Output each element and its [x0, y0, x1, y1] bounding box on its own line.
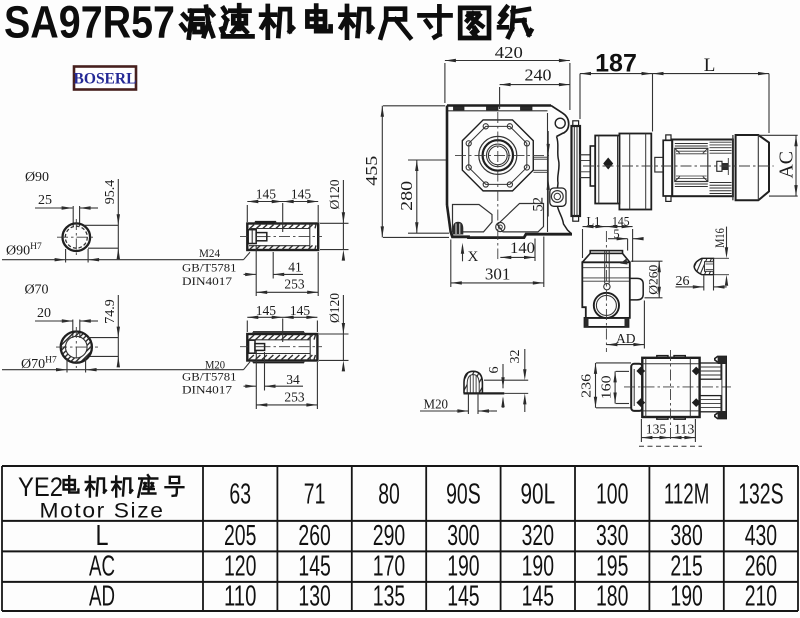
- svg-text:260: 260: [298, 520, 330, 552]
- svg-text:160: 160: [599, 375, 614, 399]
- svg-text:20: 20: [37, 306, 51, 321]
- svg-text:M24: M24: [199, 246, 220, 260]
- svg-text:280: 280: [397, 181, 416, 211]
- svg-text:Ø70: Ø70: [24, 283, 48, 298]
- svg-text:290: 290: [373, 520, 405, 552]
- svg-text:253: 253: [284, 390, 305, 405]
- svg-text:41: 41: [288, 260, 302, 275]
- svg-text:135: 135: [373, 580, 405, 612]
- svg-text:6: 6: [487, 367, 502, 374]
- svg-text:190: 190: [670, 580, 702, 612]
- svg-text:132S: 132S: [738, 479, 783, 511]
- svg-text:X: X: [467, 249, 478, 265]
- svg-text:236: 236: [580, 374, 595, 398]
- svg-text:253: 253: [284, 277, 305, 292]
- svg-text:25: 25: [38, 193, 52, 208]
- svg-text:301: 301: [485, 264, 511, 283]
- svg-text:170: 170: [373, 551, 405, 583]
- svg-text:90S: 90S: [446, 479, 481, 511]
- svg-text:AC: AC: [776, 151, 798, 179]
- svg-text:187: 187: [595, 50, 637, 78]
- svg-text:DIN4017: DIN4017: [182, 382, 232, 396]
- svg-text:215: 215: [670, 551, 702, 583]
- svg-text:420: 420: [495, 43, 523, 62]
- svg-text:190: 190: [522, 551, 554, 583]
- svg-text:26: 26: [676, 274, 690, 289]
- svg-text:63: 63: [229, 479, 251, 511]
- svg-text:80: 80: [378, 479, 400, 511]
- svg-text:135: 135: [646, 423, 667, 438]
- svg-text:SA97R57: SA97R57: [4, 0, 175, 48]
- svg-text:145: 145: [291, 187, 312, 202]
- svg-text:120: 120: [224, 551, 256, 583]
- svg-text:140: 140: [510, 240, 535, 257]
- svg-text:430: 430: [745, 520, 777, 552]
- svg-text:Ø120: Ø120: [327, 293, 342, 323]
- svg-text:145: 145: [256, 303, 277, 318]
- svg-text:300: 300: [447, 520, 479, 552]
- svg-text:145: 145: [290, 303, 311, 318]
- svg-text:130: 130: [298, 580, 330, 612]
- svg-text:240: 240: [525, 65, 552, 84]
- svg-text:205: 205: [224, 520, 256, 552]
- svg-text:110: 110: [224, 580, 256, 612]
- svg-text:34: 34: [286, 372, 300, 387]
- svg-text:113: 113: [674, 423, 695, 438]
- svg-text:L: L: [96, 520, 109, 552]
- svg-text:YE2: YE2: [18, 472, 63, 502]
- svg-text:455: 455: [362, 156, 381, 186]
- svg-text:380: 380: [670, 520, 702, 552]
- svg-text:M16: M16: [712, 228, 727, 248]
- svg-text:260: 260: [745, 551, 777, 583]
- svg-text:180: 180: [596, 580, 628, 612]
- svg-text:Ø90: Ø90: [25, 170, 49, 185]
- svg-text:330: 330: [596, 520, 628, 552]
- svg-text:71: 71: [304, 479, 326, 511]
- svg-text:AD: AD: [89, 580, 115, 612]
- svg-text:74.9: 74.9: [103, 299, 118, 324]
- svg-text:BOSERL: BOSERL: [74, 70, 137, 87]
- svg-text:L: L: [704, 55, 716, 76]
- svg-text:GB/T5781: GB/T5781: [182, 260, 237, 274]
- svg-text:145: 145: [298, 551, 330, 583]
- svg-text:DIN4017: DIN4017: [182, 274, 232, 288]
- svg-text:M20: M20: [424, 397, 449, 412]
- svg-text:AD: AD: [616, 331, 636, 346]
- svg-text:52: 52: [531, 197, 547, 212]
- svg-text:100: 100: [596, 479, 628, 511]
- svg-text:Motor Size: Motor Size: [40, 499, 165, 523]
- svg-text:Ø120: Ø120: [327, 179, 342, 209]
- svg-text:AC: AC: [89, 551, 115, 583]
- svg-text:320: 320: [522, 520, 554, 552]
- svg-text:145: 145: [256, 187, 277, 202]
- svg-text:145: 145: [522, 580, 554, 612]
- svg-text:145: 145: [447, 580, 479, 612]
- svg-text:Ø260: Ø260: [646, 265, 661, 295]
- svg-text:90L: 90L: [521, 479, 556, 511]
- svg-text:210: 210: [745, 580, 777, 612]
- svg-text:195: 195: [596, 551, 628, 583]
- svg-text:190: 190: [447, 551, 479, 583]
- svg-text:L1: L1: [587, 214, 601, 228]
- svg-text:32: 32: [508, 350, 523, 364]
- svg-text:112M: 112M: [664, 479, 709, 511]
- svg-text:95.4: 95.4: [103, 180, 118, 205]
